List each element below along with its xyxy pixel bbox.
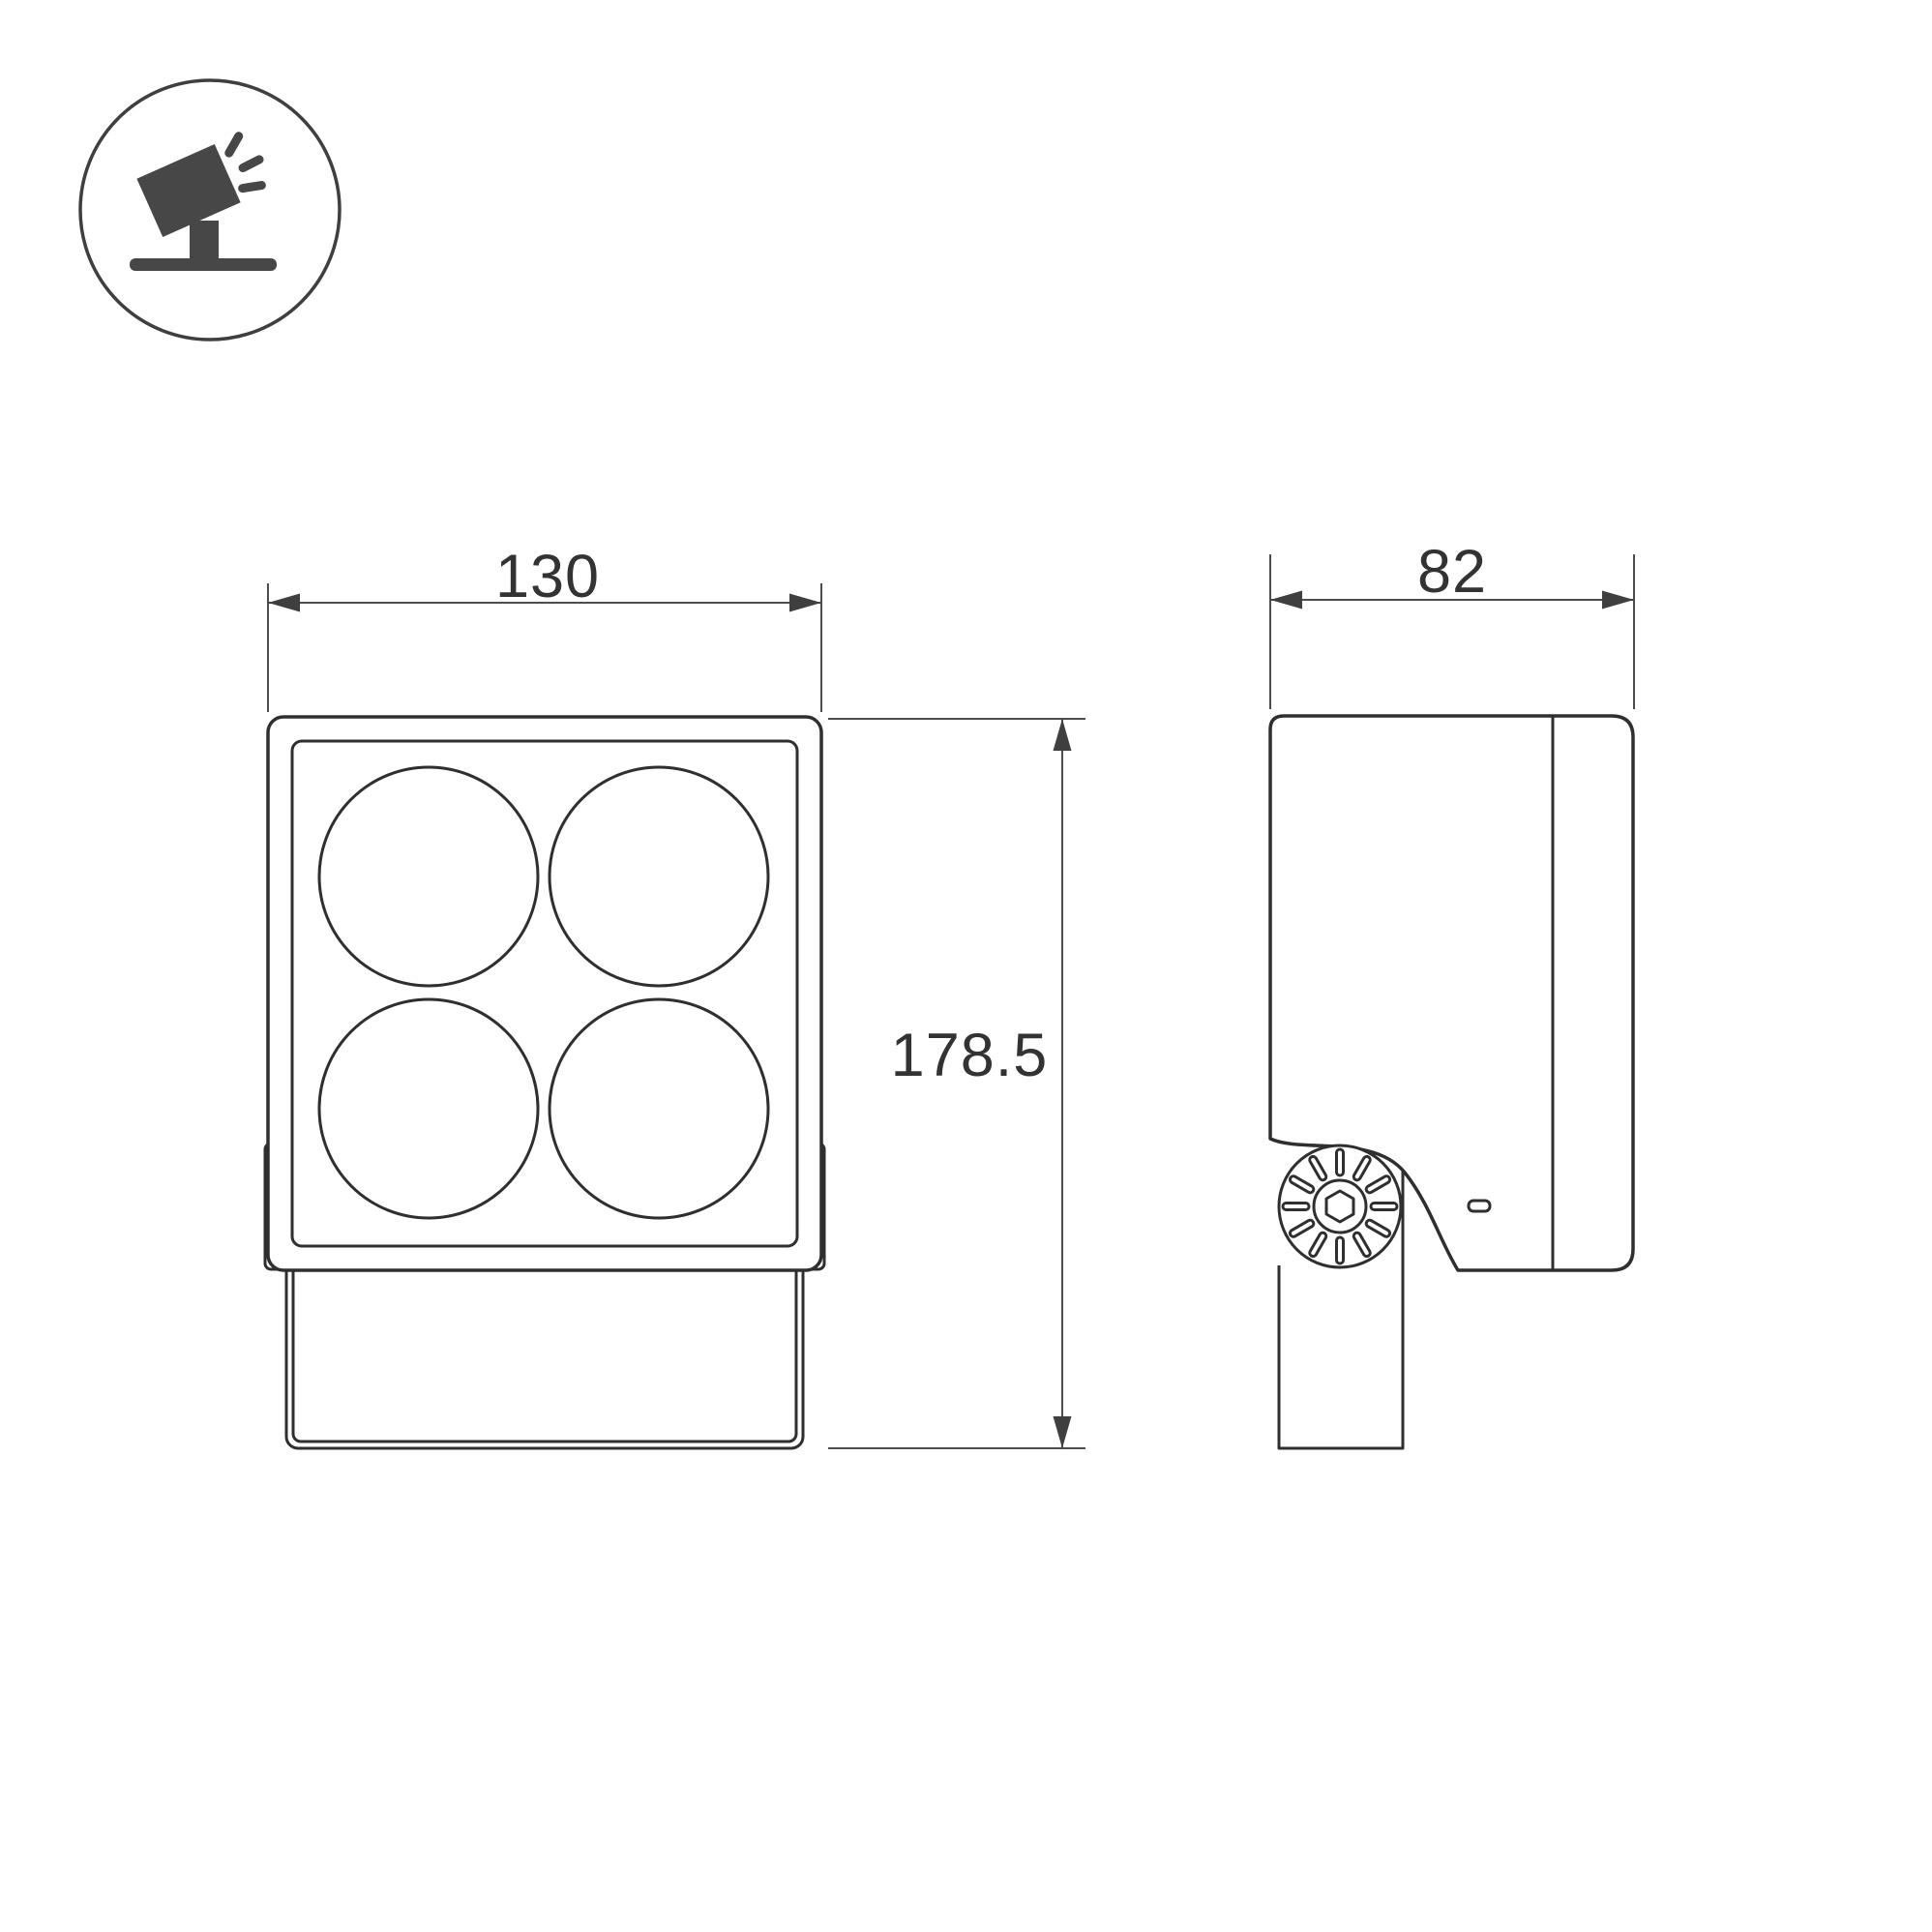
lamp-head bbox=[136, 144, 240, 237]
floodlight-icon bbox=[80, 80, 340, 340]
lamp-post bbox=[190, 221, 219, 263]
light-ray-top bbox=[223, 131, 245, 160]
arrowhead-left bbox=[268, 594, 300, 612]
arrowhead-bottom bbox=[1054, 1416, 1072, 1448]
arrowhead-right bbox=[789, 594, 821, 612]
dimension-value-side-depth: 82 bbox=[1417, 538, 1487, 606]
adjustment-knob bbox=[1279, 1145, 1401, 1267]
light-ray-bottom bbox=[237, 180, 266, 193]
dimension-front-width: 130 bbox=[268, 543, 821, 712]
knob-outer-ring bbox=[1279, 1145, 1401, 1267]
dimension-value-overall-height: 178.5 bbox=[891, 1022, 1049, 1089]
floodlight-glyph bbox=[130, 131, 277, 271]
arrowhead-right bbox=[1602, 591, 1634, 609]
dimension-value-front-width: 130 bbox=[495, 543, 600, 610]
technical-drawing-page: 130 82 178.5 bbox=[0, 0, 1932, 1932]
arrowhead-top bbox=[1054, 719, 1072, 751]
ground-base bbox=[130, 258, 277, 271]
side-view bbox=[1270, 716, 1633, 1448]
dimension-overall-height: 178.5 bbox=[828, 719, 1085, 1448]
front-view bbox=[265, 717, 824, 1448]
light-ray-middle bbox=[237, 154, 265, 174]
dimension-side-depth: 82 bbox=[1270, 538, 1634, 709]
arrowhead-left bbox=[1270, 591, 1302, 609]
floodlight-dimension-drawing: 130 82 178.5 bbox=[0, 0, 1932, 1932]
